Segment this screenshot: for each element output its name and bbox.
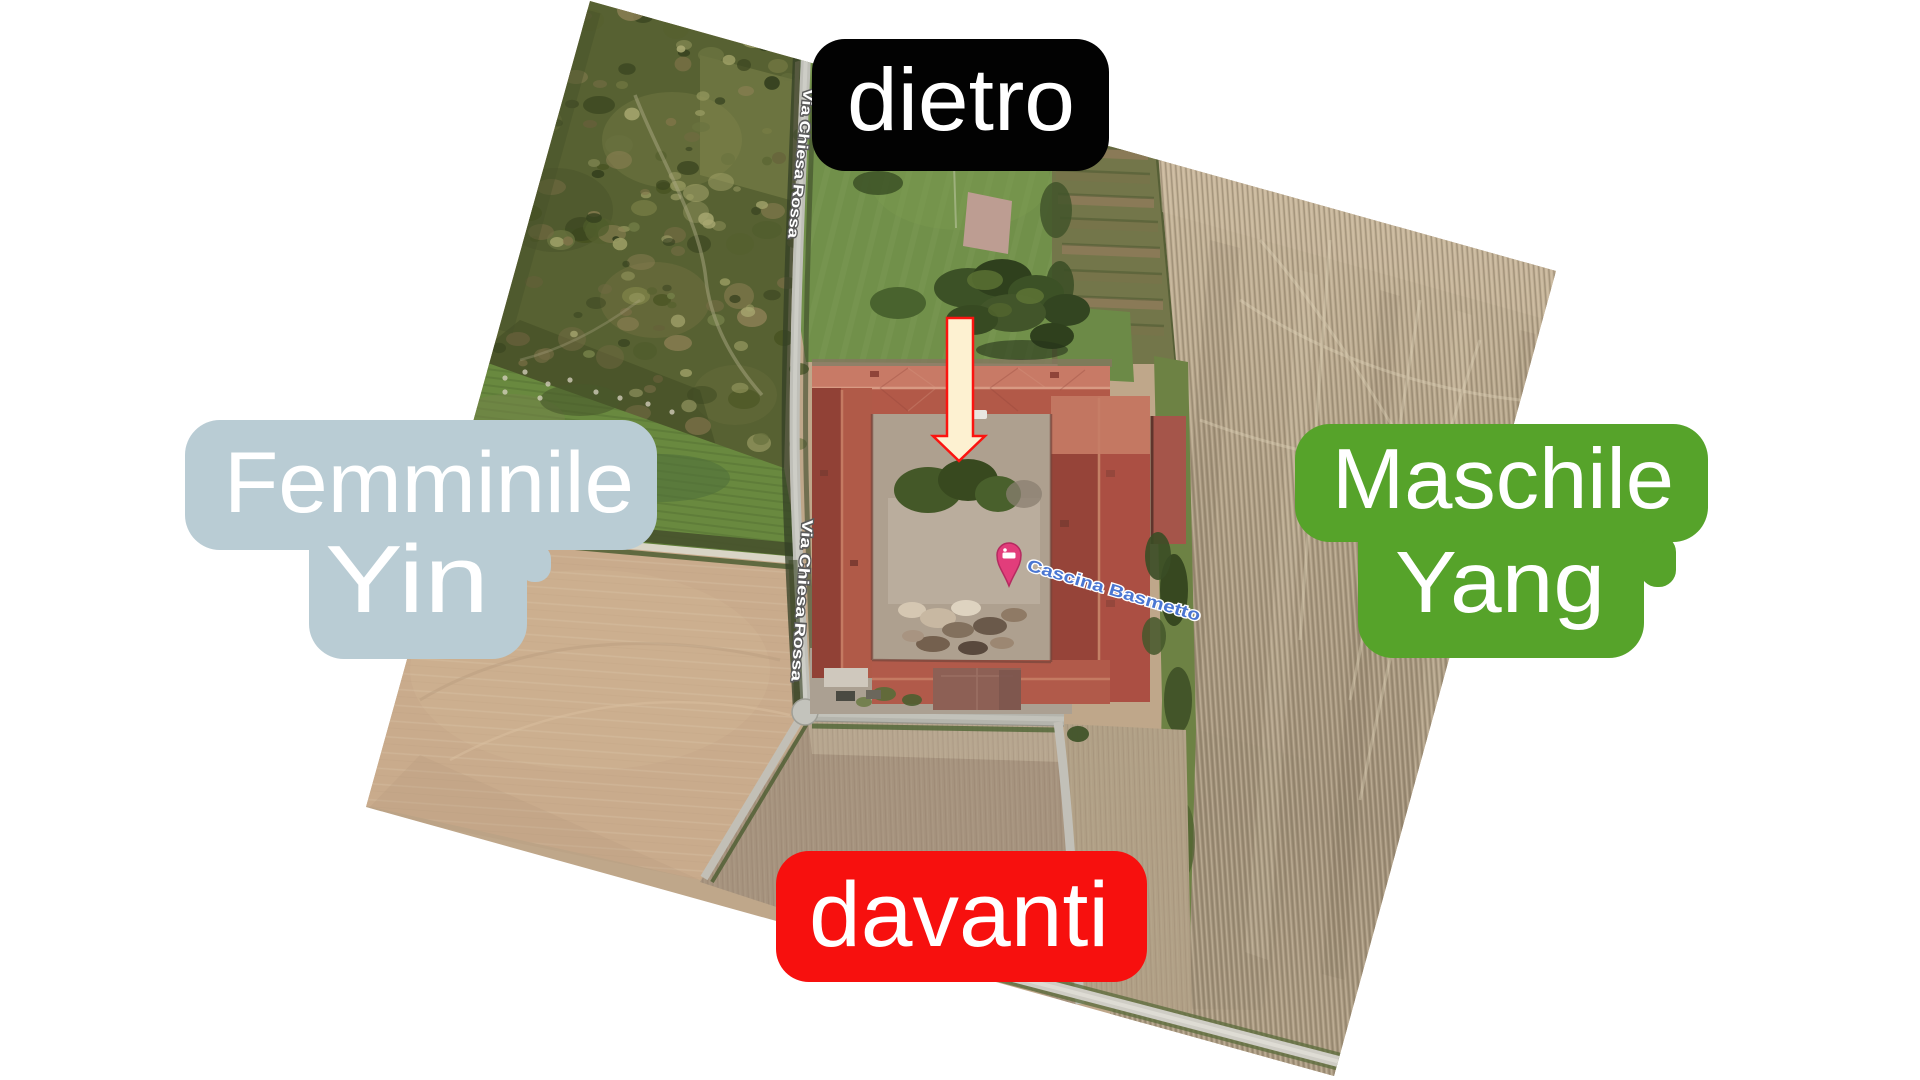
svg-text:davanti: davanti [809, 864, 1109, 966]
svg-text:Femminile: Femminile [224, 435, 634, 531]
svg-text:Maschile: Maschile [1332, 432, 1674, 527]
svg-text:Yang: Yang [1395, 534, 1605, 631]
svg-text:Yin: Yin [325, 526, 489, 633]
svg-text:dietro: dietro [847, 50, 1075, 149]
